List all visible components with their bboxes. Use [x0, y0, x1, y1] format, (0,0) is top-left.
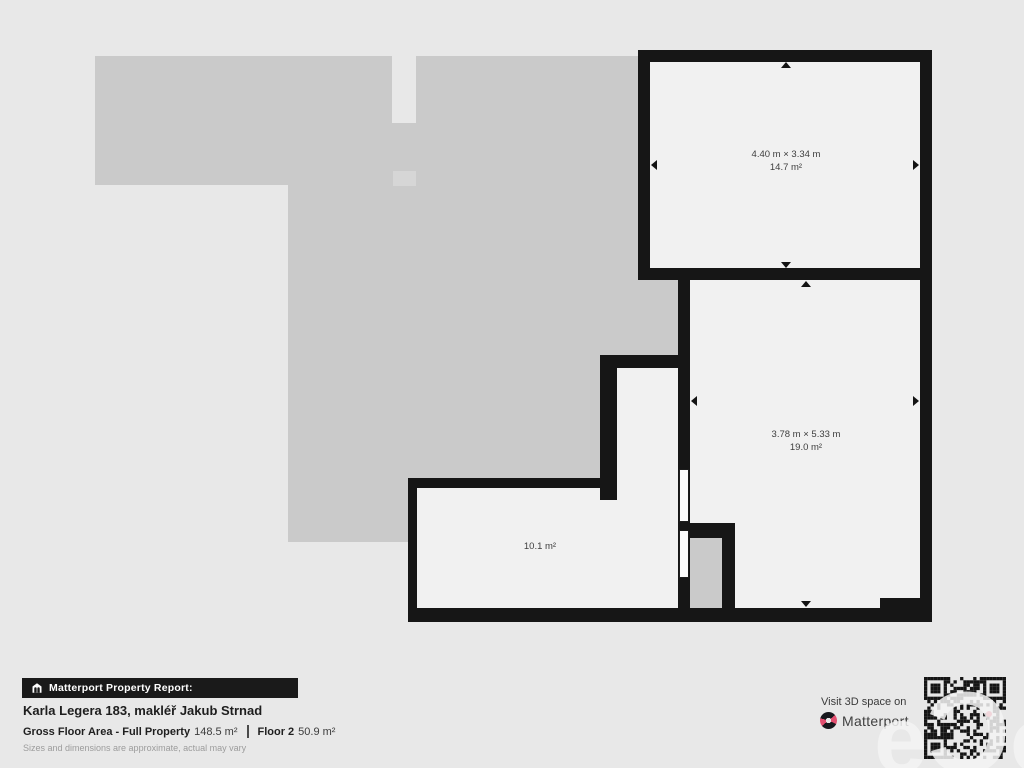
room-3-wall-corner — [600, 488, 617, 500]
floor-value: 50.9 m² — [298, 726, 335, 738]
door-opening — [679, 469, 689, 522]
room-2-label: 3.78 m × 5.33 m 19.0 m² — [772, 428, 841, 454]
matterport-logo: Matterport — [820, 712, 909, 729]
room-2-wall-step — [880, 598, 920, 608]
disclaimer-text: Sizes and dimensions are approximate, ac… — [23, 743, 246, 753]
room-area-text: 19.0 m² — [772, 441, 841, 454]
matterport-pinwheel-icon — [820, 712, 837, 729]
dimension-arrow-up-icon — [801, 281, 811, 287]
room-dimensions-text: 3.78 m × 5.33 m — [772, 428, 841, 441]
lower-floor-silhouette — [640, 280, 678, 355]
room-2-notch-wall — [722, 538, 735, 608]
floor-label: Floor 2 — [258, 726, 295, 738]
watermark-accent-dot — [986, 711, 992, 717]
lower-floor-silhouette — [95, 56, 288, 185]
separator — [247, 725, 249, 738]
watermark-letter: o — [1010, 687, 1024, 768]
room-1-label: 4.40 m × 3.34 m 14.7 m² — [752, 148, 821, 174]
dimension-arrow-right-icon — [913, 396, 919, 406]
silhouette-opening-mark — [393, 171, 416, 186]
room-area-text: 14.7 m² — [752, 161, 821, 174]
property-title: Karla Legera 183, makléř Jakub Strnad — [23, 703, 262, 718]
dimension-arrow-down-icon — [801, 601, 811, 607]
dimension-arrow-left-icon — [651, 160, 657, 170]
visit-3d-label: Visit 3D space on — [821, 696, 906, 708]
room-3-floor — [617, 368, 678, 608]
floorplan-report-page: 4.40 m × 3.34 m 14.7 m² 10.1 m² 3.78 m ×… — [0, 0, 1024, 768]
matterport-wordmark: Matterport — [842, 713, 909, 729]
room-2-notch-wall — [690, 523, 735, 538]
dimension-arrow-left-icon — [691, 396, 697, 406]
room-dimensions-text: 4.40 m × 3.34 m — [752, 148, 821, 161]
door-opening — [679, 530, 689, 578]
silhouette-notch — [392, 56, 416, 123]
dimension-arrow-up-icon — [781, 62, 791, 68]
building-icon — [31, 682, 43, 694]
gfa-label: Gross Floor Area - Full Property — [23, 726, 190, 738]
lower-floor-silhouette — [288, 56, 640, 542]
gfa-value: 148.5 m² — [194, 726, 237, 738]
notch-silhouette-patch — [690, 538, 722, 608]
area-summary: Gross Floor Area - Full Property 148.5 m… — [23, 725, 335, 738]
room-3-label: 10.1 m² — [524, 540, 556, 553]
room-area-text: 10.1 m² — [524, 540, 556, 553]
dimension-arrow-right-icon — [913, 160, 919, 170]
badge-label: Matterport Property Report: — [49, 682, 193, 694]
qr-code — [924, 677, 1006, 759]
matterport-report-badge: Matterport Property Report: — [22, 678, 298, 698]
